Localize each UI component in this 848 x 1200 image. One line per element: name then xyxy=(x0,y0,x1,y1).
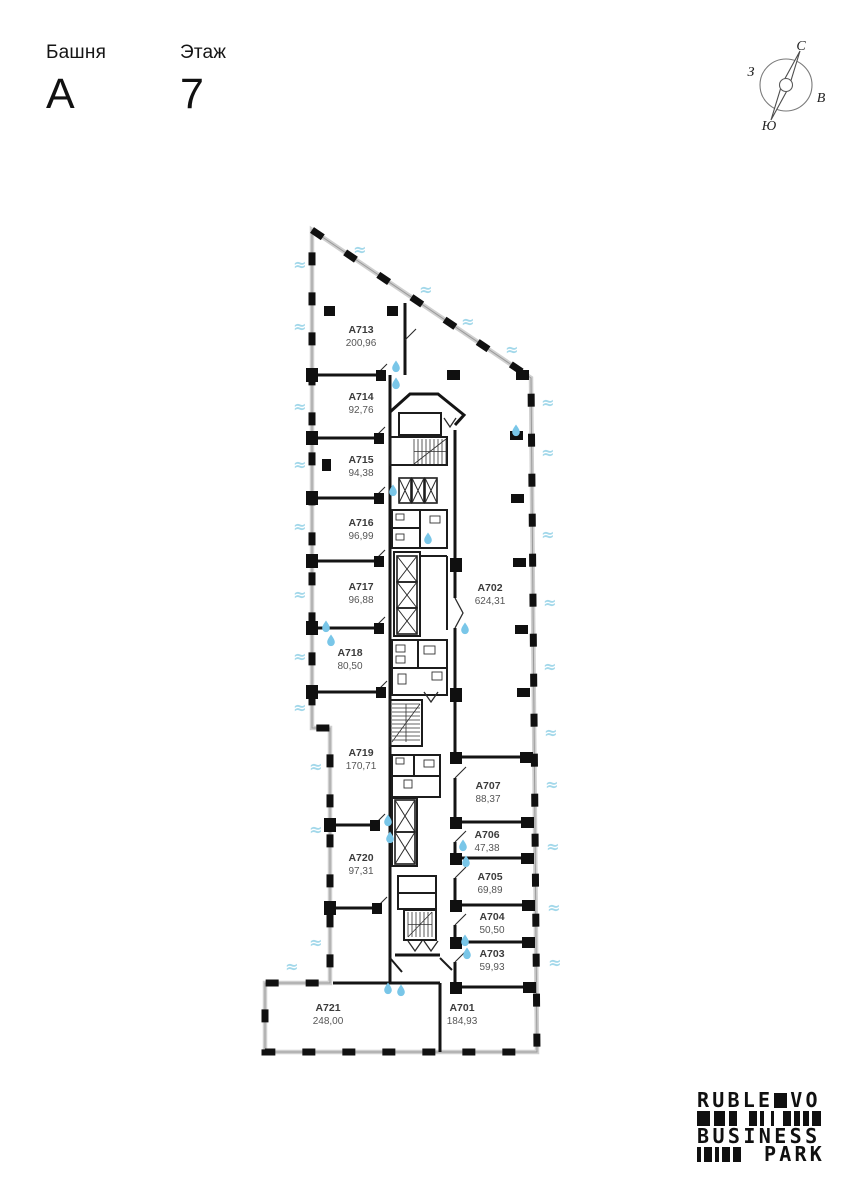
window-icon: ≈ xyxy=(353,240,366,259)
column xyxy=(374,433,384,444)
room-label: А719170,71 xyxy=(346,747,377,772)
barcode-segment xyxy=(722,1147,730,1162)
logo-square-icon xyxy=(774,1093,787,1108)
logo-barcode-park-row: PARK xyxy=(697,1147,825,1162)
column xyxy=(306,621,318,635)
room-id: А715 xyxy=(348,454,373,466)
room-id: А706 xyxy=(474,829,499,841)
fixture xyxy=(396,645,405,652)
room-label: А721248,00 xyxy=(313,1002,344,1027)
room-id: А717 xyxy=(348,581,373,593)
fixture xyxy=(424,646,435,654)
logo-ruble-text: RUBLE xyxy=(697,1092,773,1109)
elevator-icon xyxy=(395,832,415,864)
room-label: А713200,96 xyxy=(346,324,377,349)
window-icons: ≈≈≈≈≈≈≈≈≈≈≈≈≈≈≈≈≈≈≈≈≈≈≈≈≈≈ xyxy=(285,240,561,976)
window-icon: ≈ xyxy=(285,957,298,976)
barcode-segment xyxy=(715,1147,719,1162)
fixture xyxy=(404,780,412,788)
column xyxy=(376,687,386,698)
fixture xyxy=(396,534,404,540)
window-icon: ≈ xyxy=(541,443,554,462)
window-icon: ≈ xyxy=(547,898,560,917)
column xyxy=(306,685,318,699)
water-drop-icon xyxy=(322,621,330,633)
column xyxy=(306,431,318,445)
room-id: А704 xyxy=(479,911,504,923)
room-id: А707 xyxy=(475,780,500,792)
room-area: 97,31 xyxy=(348,866,373,877)
column xyxy=(517,688,530,697)
room-label: А70788,37 xyxy=(475,780,501,805)
room-id: А714 xyxy=(348,391,373,403)
column xyxy=(522,937,535,948)
room-id: А720 xyxy=(348,852,373,864)
window-icon: ≈ xyxy=(545,775,558,794)
room-id: А705 xyxy=(477,871,502,883)
water-drop-icon xyxy=(392,361,400,373)
barcode-segment xyxy=(704,1147,712,1162)
column xyxy=(450,817,462,829)
column xyxy=(521,817,534,828)
partition-walls xyxy=(312,303,535,1052)
room-id: А713 xyxy=(348,324,373,336)
stairs-icon xyxy=(408,912,432,937)
water-drop-icon xyxy=(397,985,405,997)
column xyxy=(372,903,382,914)
room-label: А71492,76 xyxy=(348,391,374,416)
room-label: А71696,99 xyxy=(348,517,374,542)
water-drop-icon xyxy=(327,635,335,647)
logo-park-text: PARK xyxy=(764,1147,825,1162)
room-label: А72097,31 xyxy=(348,852,374,877)
window-icon: ≈ xyxy=(293,317,306,336)
elevator-icon xyxy=(395,800,415,832)
water-drop-icon xyxy=(512,425,520,437)
window-icon: ≈ xyxy=(541,525,554,544)
window-icon: ≈ xyxy=(546,837,559,856)
window-icon: ≈ xyxy=(293,647,306,666)
column xyxy=(376,370,386,381)
column xyxy=(450,982,462,994)
column xyxy=(515,625,528,634)
room-label: А701184,93 xyxy=(447,1002,478,1027)
room-id: А703 xyxy=(479,948,504,960)
water-drop-icon xyxy=(424,533,432,545)
room-label: А71594,38 xyxy=(348,454,374,479)
water-drop-icon xyxy=(461,623,469,635)
elevator-icon xyxy=(397,608,417,634)
column xyxy=(450,853,462,865)
window-icon: ≈ xyxy=(309,757,322,776)
window-icon: ≈ xyxy=(548,953,561,972)
room-area: 96,88 xyxy=(348,595,373,606)
fixture xyxy=(396,758,404,764)
column xyxy=(513,558,526,567)
room-area: 200,96 xyxy=(346,338,377,349)
window-icon: ≈ xyxy=(293,255,306,274)
floorplan-page: Башня А Этаж 7 С З В Ю ≈≈≈≈≈≈≈≈ xyxy=(0,0,848,1200)
room-label: А70359,93 xyxy=(479,948,505,973)
stairs-icon xyxy=(414,439,446,464)
column xyxy=(324,818,336,832)
column xyxy=(374,493,384,504)
room-id: А701 xyxy=(449,1002,474,1014)
water-drop-icon xyxy=(463,948,471,960)
elevator-icon xyxy=(425,478,437,503)
room-id: А702 xyxy=(477,582,502,594)
column xyxy=(522,900,535,911)
room-area: 80,50 xyxy=(337,661,362,672)
room-area: 184,93 xyxy=(447,1016,478,1027)
window-icon: ≈ xyxy=(544,723,557,742)
column xyxy=(450,900,462,912)
room-area: 94,38 xyxy=(348,468,373,479)
elevator-icon xyxy=(397,556,417,582)
column xyxy=(450,752,462,764)
column xyxy=(516,370,529,380)
column xyxy=(306,368,318,382)
room-id: А716 xyxy=(348,517,373,529)
window-icon: ≈ xyxy=(541,393,554,412)
column xyxy=(324,306,335,316)
column xyxy=(521,853,534,864)
fixture xyxy=(396,656,405,663)
column xyxy=(324,901,336,915)
column xyxy=(450,937,462,949)
column xyxy=(374,623,384,634)
logo-vo-text: VO xyxy=(790,1092,820,1109)
water-drop-icon xyxy=(392,378,400,390)
barcode-segment xyxy=(733,1147,741,1162)
column xyxy=(450,558,462,572)
fixture xyxy=(430,516,440,523)
column xyxy=(387,306,398,316)
room-area: 69,89 xyxy=(477,885,502,896)
window-icon: ≈ xyxy=(309,933,322,952)
room-label: А70450,50 xyxy=(479,911,505,936)
water-drop-icon xyxy=(459,840,467,852)
column xyxy=(370,820,380,831)
column xyxy=(450,688,462,702)
window-icon: ≈ xyxy=(543,593,556,612)
window-icon: ≈ xyxy=(543,657,556,676)
window-icon: ≈ xyxy=(309,820,322,839)
rublevo-business-park-logo: RUBLEVO BUSINESS PARK xyxy=(697,1092,825,1164)
window-icon: ≈ xyxy=(293,698,306,717)
column xyxy=(447,370,460,380)
room-area: 88,37 xyxy=(475,794,500,805)
room-label: А71796,88 xyxy=(348,581,374,606)
room-area: 50,50 xyxy=(479,925,504,936)
fixture xyxy=(398,674,406,684)
room-id: А721 xyxy=(315,1002,340,1014)
column xyxy=(511,494,524,503)
window-icon: ≈ xyxy=(419,280,432,299)
column xyxy=(374,556,384,567)
elevator-icon xyxy=(397,582,417,608)
room-area: 624,31 xyxy=(475,596,506,607)
room-label: А702624,31 xyxy=(475,582,506,607)
floor-plan: ≈≈≈≈≈≈≈≈≈≈≈≈≈≈≈≈≈≈≈≈≈≈≈≈≈≈ А701184,93А70… xyxy=(0,0,848,1200)
column xyxy=(523,982,536,993)
room-label: А70569,89 xyxy=(477,871,503,896)
barcode-segment xyxy=(697,1147,701,1162)
room-area: 59,93 xyxy=(479,962,504,973)
window-icon: ≈ xyxy=(293,455,306,474)
room-id: А718 xyxy=(337,647,362,659)
column xyxy=(520,752,533,763)
room-area: 47,38 xyxy=(474,843,499,854)
column xyxy=(306,554,318,568)
window-icon: ≈ xyxy=(505,340,518,359)
column xyxy=(322,459,331,471)
fixture xyxy=(432,672,442,680)
elevator-icon xyxy=(399,478,411,503)
room-label: А70647,38 xyxy=(474,829,500,854)
fixture xyxy=(396,514,404,520)
fixture xyxy=(424,760,434,767)
room-area: 96,99 xyxy=(348,531,373,542)
window-icon: ≈ xyxy=(461,312,474,331)
logo-line-1: RUBLEVO xyxy=(697,1092,825,1109)
room-labels: А701184,93А702624,31А70359,93А70450,50А7… xyxy=(313,324,506,1027)
room-area: 248,00 xyxy=(313,1016,344,1027)
elevator-icon xyxy=(412,478,424,503)
window-icon: ≈ xyxy=(293,397,306,416)
window-icon: ≈ xyxy=(293,517,306,536)
room-area: 92,76 xyxy=(348,405,373,416)
room-id: А719 xyxy=(348,747,373,759)
water-drop-icon xyxy=(461,935,469,947)
column xyxy=(306,491,318,505)
room-area: 170,71 xyxy=(346,761,377,772)
room-label: А71880,50 xyxy=(337,647,363,672)
window-icon: ≈ xyxy=(293,585,306,604)
stairs-icon xyxy=(392,704,420,742)
